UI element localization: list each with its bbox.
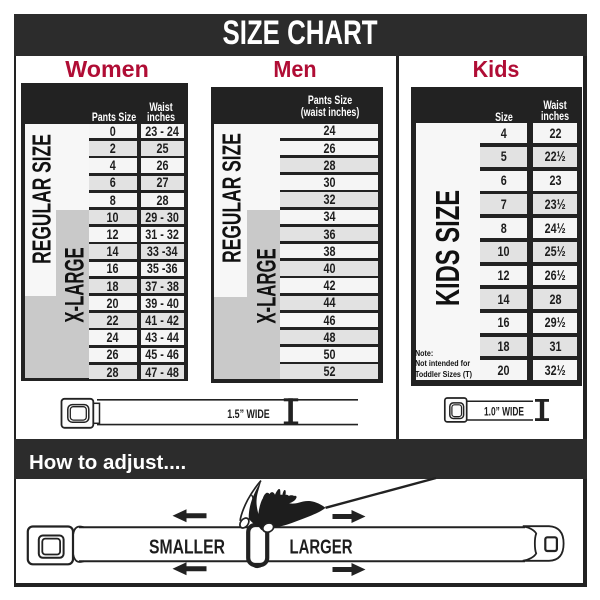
svg-text:SMALLER: SMALLER bbox=[149, 537, 225, 559]
svg-text:LARGER: LARGER bbox=[290, 537, 353, 559]
svg-text:1.0” WIDE: 1.0” WIDE bbox=[484, 407, 524, 419]
svg-text:1.5” WIDE: 1.5” WIDE bbox=[227, 407, 270, 421]
